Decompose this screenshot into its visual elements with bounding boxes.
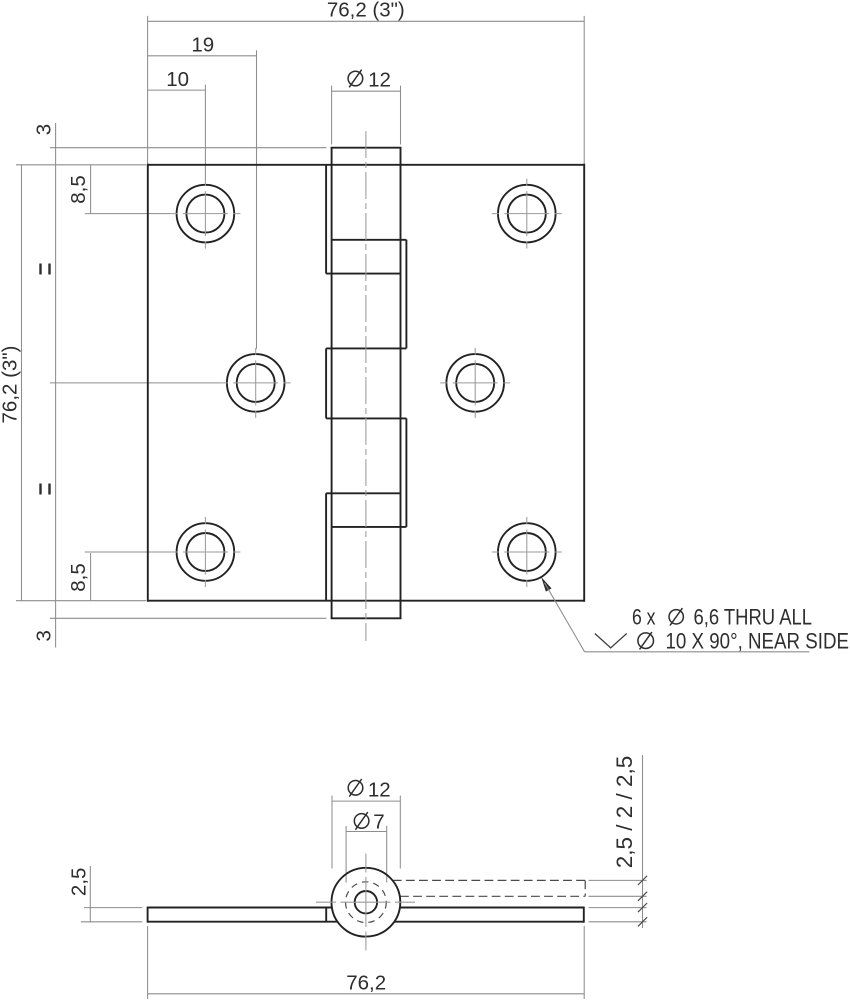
svg-text:76,2: 76,2 <box>346 971 386 994</box>
svg-text:6,6 THRU ALL: 6,6 THRU ALL <box>694 605 813 630</box>
svg-text:6 x: 6 x <box>632 605 656 630</box>
svg-text:12: 12 <box>368 68 391 91</box>
svg-text:12: 12 <box>368 778 391 801</box>
svg-text:2,5 / 2 / 2,5: 2,5 / 2 / 2,5 <box>612 756 637 869</box>
svg-text:3: 3 <box>33 630 56 641</box>
svg-text:8,5: 8,5 <box>67 175 90 204</box>
svg-text:10 X 90°, NEAR SIDE: 10 X 90°, NEAR SIDE <box>666 628 850 653</box>
svg-text:8,5: 8,5 <box>67 563 90 592</box>
svg-text:19: 19 <box>191 34 214 57</box>
svg-text:76,2 (3"): 76,2 (3") <box>327 0 405 21</box>
svg-text:10: 10 <box>166 68 189 91</box>
svg-text:7: 7 <box>373 811 384 834</box>
svg-text:76,2 (3"): 76,2 (3") <box>0 346 22 424</box>
svg-text:3: 3 <box>33 124 56 135</box>
svg-text:2,5: 2,5 <box>68 868 91 897</box>
